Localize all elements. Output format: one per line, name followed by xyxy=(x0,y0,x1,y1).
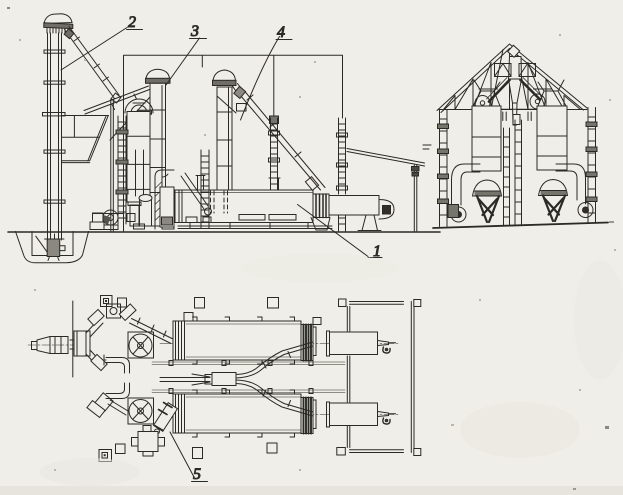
svg-text:2: 2 xyxy=(128,14,136,31)
svg-text:3: 3 xyxy=(190,23,199,40)
svg-text:4: 4 xyxy=(277,24,285,41)
svg-text:5: 5 xyxy=(193,466,201,483)
